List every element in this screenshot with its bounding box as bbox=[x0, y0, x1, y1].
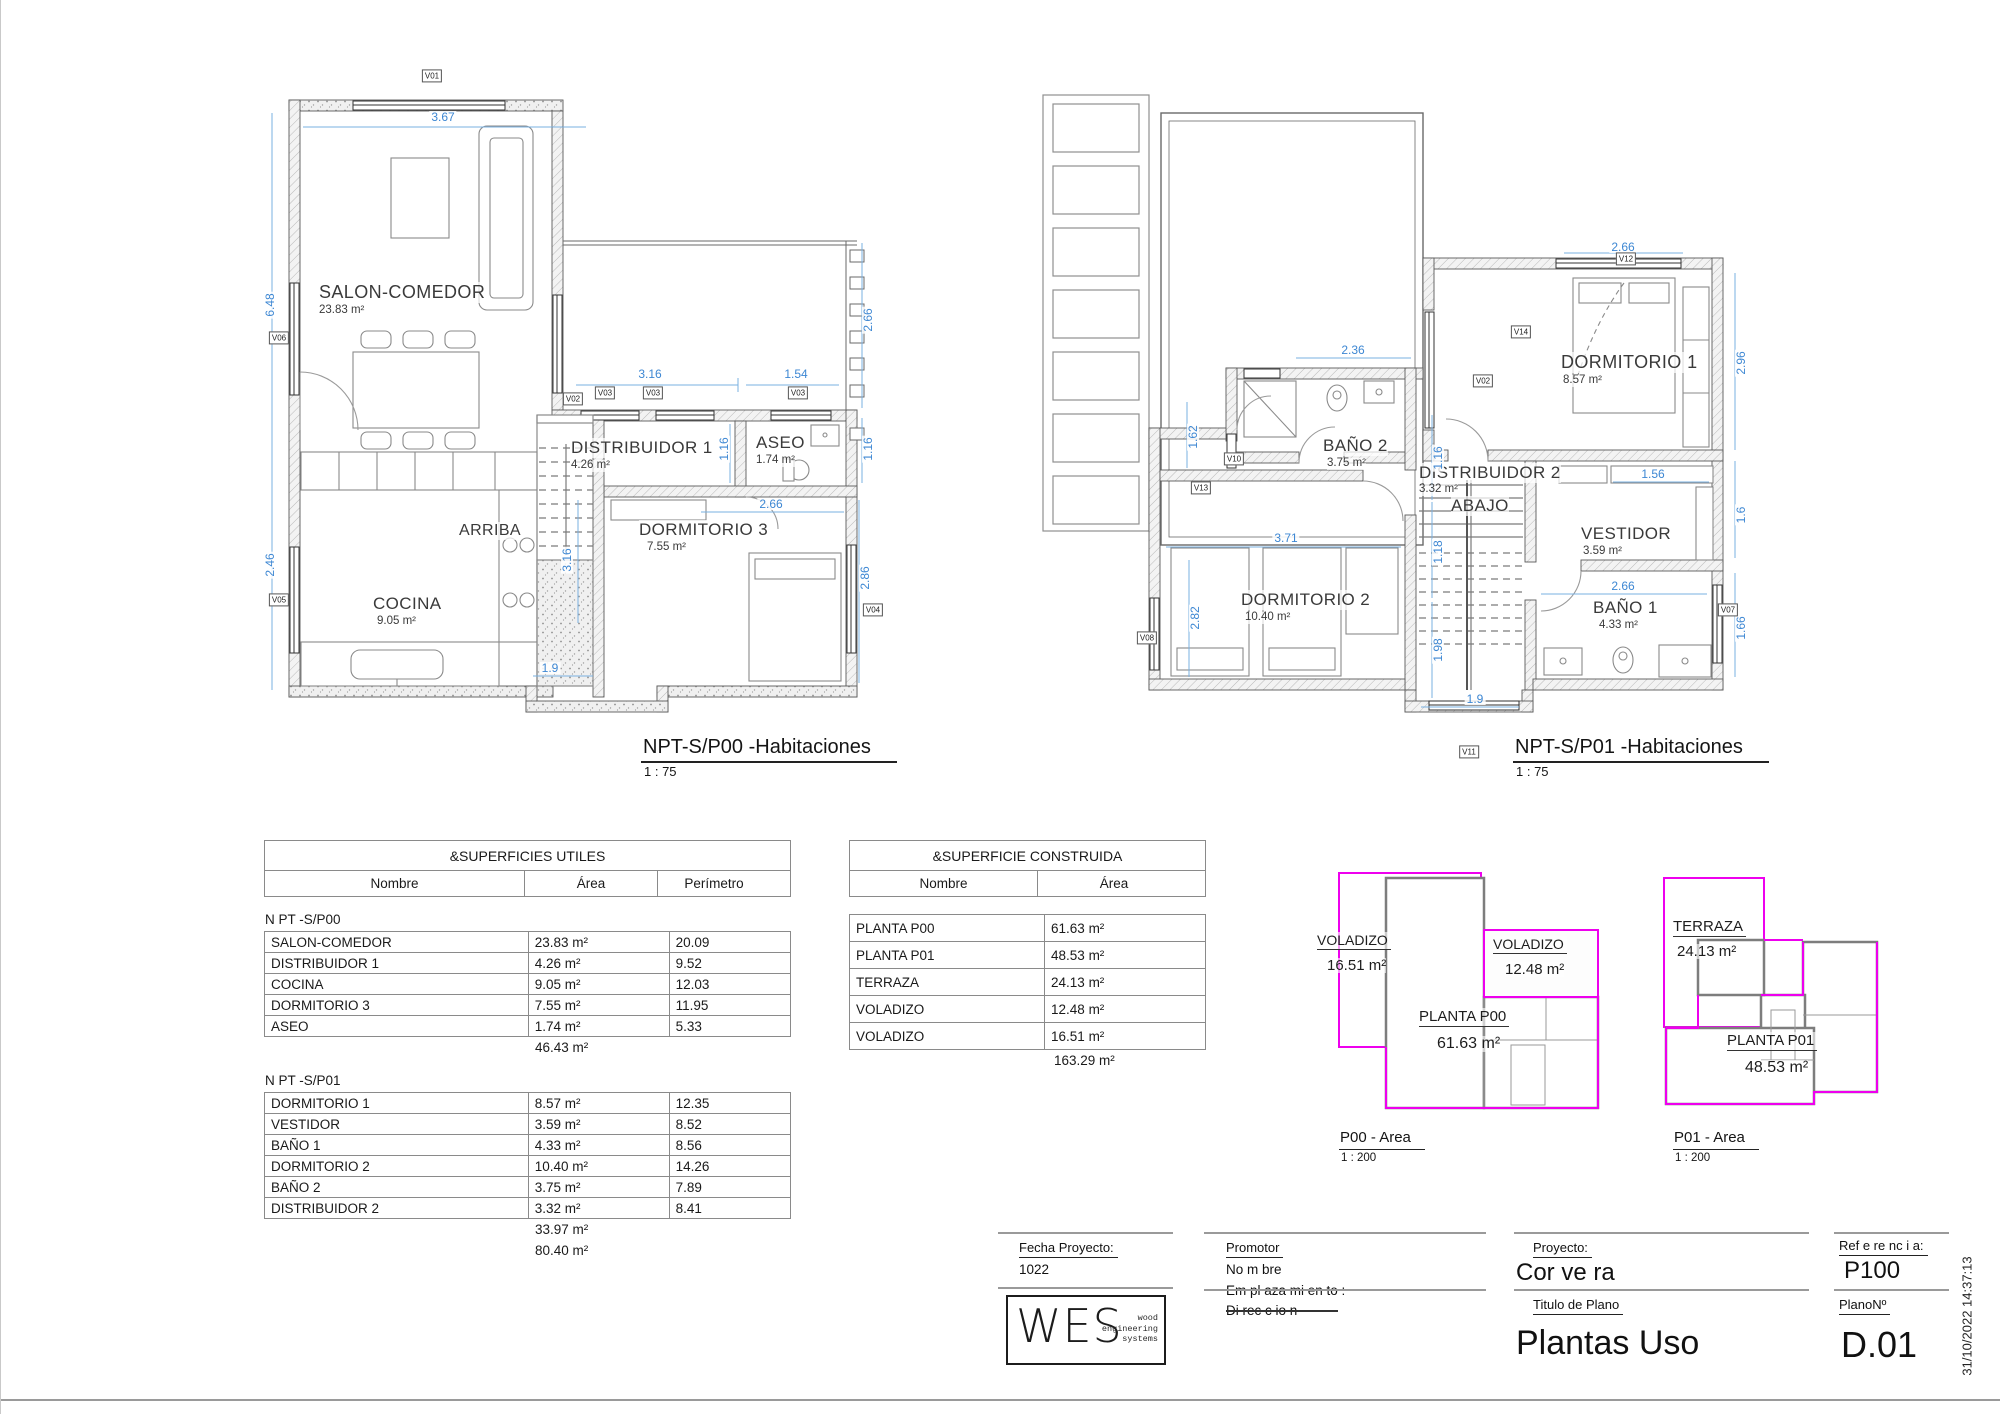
table-construida-rows: PLANTA P0061.63 m² PLANTA P0148.53 m² TE… bbox=[849, 914, 1206, 1050]
table-utiles-rows-p00: SALON-COMEDOR23.83 m²20.09 DISTRIBUIDOR … bbox=[264, 931, 791, 1037]
table-utiles-rows-p01: DORMITORIO 18.57 m²12.35 VESTIDOR3.59 m²… bbox=[264, 1092, 791, 1219]
table-construida-title: &SUPERFICIE CONSTRUIDA bbox=[849, 840, 1206, 871]
window-tag-v03a: V03 bbox=[595, 386, 615, 399]
subtotal-p00: 46.43 m² bbox=[264, 1037, 791, 1058]
room-area-dormitorio-3: 7.55 m² bbox=[647, 542, 686, 554]
table-utiles-title: &SUPERFICIES UTILES bbox=[264, 840, 791, 871]
area-p00-shapes bbox=[1339, 873, 1598, 1108]
table-row: SALON-COMEDOR23.83 m²20.09 bbox=[265, 932, 790, 952]
wes-logo-subtext: woodengineeringsystems bbox=[1102, 1313, 1158, 1345]
promotor-nombre: No m bre bbox=[1226, 1262, 1282, 1278]
table-row: PLANTA P0148.53 m² bbox=[850, 941, 1205, 968]
area-p01-terraza-label: TERRAZA bbox=[1673, 918, 1746, 937]
room-label-bano-1: BAÑO 1 bbox=[1593, 598, 1658, 618]
window-tag-v04: V04 bbox=[863, 603, 883, 616]
table-utiles-header: Nombre Área Perímetro bbox=[264, 870, 791, 897]
room-label-bano-2: BAÑO 2 bbox=[1323, 436, 1388, 456]
table-construida-header: Nombre Área bbox=[849, 870, 1206, 897]
room-label-dormitorio-2: DORMITORIO 2 bbox=[1241, 590, 1370, 610]
col-perimetro: Perímetro bbox=[657, 871, 770, 896]
dim-p01-266t: 2.66 bbox=[1609, 241, 1636, 253]
window-tag-v02: V02 bbox=[563, 392, 583, 405]
area-p01-planta-value: 48.53 m² bbox=[1745, 1060, 1808, 1076]
room-label-vestidor: VESTIDOR bbox=[1581, 524, 1671, 544]
strike-line bbox=[1226, 1310, 1338, 1312]
area-p00-planta-label: PLANTA P00 bbox=[1419, 1008, 1509, 1027]
dim-p00-154: 1.54 bbox=[782, 368, 809, 380]
dim-p01-162: 1.62 bbox=[1187, 423, 1199, 450]
table-row: DORMITORIO 37.55 m²11.95 bbox=[265, 994, 790, 1015]
table-row: VOLADIZO12.48 m² bbox=[850, 995, 1205, 1022]
col-area: Área bbox=[524, 871, 657, 896]
referencia-label: Ref e re nc i a: bbox=[1839, 1238, 1928, 1256]
table-row: TERRAZA24.13 m² bbox=[850, 968, 1205, 995]
group-label-p01: N PT -S/P01 bbox=[265, 1073, 791, 1088]
dim-p01-266b: 2.66 bbox=[1609, 580, 1636, 592]
plano-numero-value: D.01 bbox=[1841, 1326, 1917, 1364]
dim-p01-166: 1.66 bbox=[1735, 614, 1747, 641]
titleblock-rule bbox=[1834, 1289, 1949, 1291]
table-row: ASEO1.74 m²5.33 bbox=[265, 1015, 790, 1036]
window-tag-v02-p01: V02 bbox=[1473, 374, 1493, 387]
dim-p00-286: 2.86 bbox=[859, 564, 871, 591]
col-area: Área bbox=[1037, 871, 1190, 896]
fecha-proyecto-label: Fecha Proyecto: bbox=[1019, 1240, 1118, 1258]
window-tag-v06: V06 bbox=[269, 331, 289, 344]
area-p00-voladizo-left-value: 16.51 m² bbox=[1327, 958, 1386, 973]
col-nombre: Nombre bbox=[850, 871, 1037, 896]
area-p01-planta-label: PLANTA P01 bbox=[1727, 1032, 1817, 1051]
area-p00-scale: 1 : 200 bbox=[1341, 1153, 1376, 1165]
col-nombre: Nombre bbox=[265, 871, 524, 896]
plan-p01-louvers bbox=[1043, 95, 1149, 531]
wes-logo: WES woodengineeringsystems bbox=[1006, 1295, 1166, 1365]
room-area-dormitorio-2: 10.40 m² bbox=[1245, 612, 1290, 624]
stair-label-arriba: ARRIBA bbox=[459, 522, 521, 540]
dim-p01-19: 1.9 bbox=[1465, 693, 1486, 705]
window-tag-v11: V11 bbox=[1459, 745, 1479, 758]
area-p00-title: P00 - Area bbox=[1339, 1130, 1425, 1150]
table-row: VESTIDOR3.59 m²8.52 bbox=[265, 1113, 790, 1134]
room-label-aseo: ASEO bbox=[756, 433, 805, 453]
table-row: DORMITORIO 210.40 m²14.26 bbox=[265, 1155, 790, 1176]
plano-numero-label: PlanoNº bbox=[1839, 1297, 1890, 1315]
stair-label-abajo: ABAJO bbox=[1451, 496, 1509, 516]
group-label-p00: N PT -S/P00 bbox=[265, 912, 791, 927]
dim-p00-266r: 2.66 bbox=[862, 306, 874, 333]
dim-p01-198: 1.98 bbox=[1432, 636, 1444, 663]
area-p00-planta-value: 61.63 m² bbox=[1437, 1036, 1500, 1052]
area-p00-voladizo-right-label: VOLADIZO bbox=[1493, 936, 1567, 954]
room-area-bano-1: 4.33 m² bbox=[1599, 620, 1638, 632]
dim-p00-246: 2.46 bbox=[264, 551, 276, 578]
room-label-dormitorio-3: DORMITORIO 3 bbox=[639, 520, 768, 540]
window-tag-v08: V08 bbox=[1137, 631, 1157, 644]
table-row: BAÑO 14.33 m²8.56 bbox=[265, 1134, 790, 1155]
area-p00-voladizo-right-value: 12.48 m² bbox=[1505, 962, 1564, 977]
table-row: BAÑO 23.75 m²7.89 bbox=[265, 1176, 790, 1197]
titleblock-rule bbox=[1204, 1232, 1486, 1234]
room-area-cocina: 9.05 m² bbox=[377, 616, 416, 628]
titleblock-rule bbox=[1514, 1289, 1809, 1291]
area-p01-title: P01 - Area bbox=[1673, 1130, 1759, 1150]
table-row: DISTRIBUIDOR 14.26 m²9.52 bbox=[265, 952, 790, 973]
dim-p01-156: 1.56 bbox=[1639, 468, 1666, 480]
dim-p01-282: 2.82 bbox=[1189, 604, 1201, 631]
area-p00-voladizo-left-label: VOLADIZO bbox=[1317, 932, 1391, 950]
sheet-bottom-rule bbox=[1, 1399, 2000, 1401]
drawing-sheet: SALON-COMEDOR 23.83 m² DISTRIBUIDOR 1 4.… bbox=[0, 0, 2000, 1414]
window-tag-v12: V12 bbox=[1616, 252, 1636, 265]
dim-p00-367: 3.67 bbox=[429, 111, 456, 123]
table-row: COCINA9.05 m²12.03 bbox=[265, 973, 790, 994]
room-label-distribuidor-1: DISTRIBUIDOR 1 bbox=[571, 438, 713, 458]
table-superficie-construida: &SUPERFICIE CONSTRUIDA Nombre Área PLANT… bbox=[849, 840, 1206, 1071]
dim-p00-316: 3.16 bbox=[636, 368, 663, 380]
total-construida: 163.29 m² bbox=[849, 1050, 1206, 1071]
window-tag-v13: V13 bbox=[1191, 481, 1211, 494]
titleblock-rule bbox=[1514, 1232, 1809, 1234]
dim-p00-116b: 1.16 bbox=[862, 435, 874, 462]
room-label-salon-comedor: SALON-COMEDOR bbox=[319, 282, 485, 303]
room-area-distribuidor-2: 3.32 m² bbox=[1419, 484, 1458, 496]
dim-p01-296: 2.96 bbox=[1735, 349, 1747, 376]
plan-p00-title: NPT-S/P00 -Habitaciones bbox=[641, 736, 897, 763]
dim-p00-116a: 1.16 bbox=[718, 435, 730, 462]
titleblock-rule bbox=[1834, 1232, 1949, 1234]
table-row: VOLADIZO16.51 m² bbox=[850, 1022, 1205, 1049]
window-tag-v14: V14 bbox=[1511, 325, 1531, 338]
plan-p01-title: NPT-S/P01 -Habitaciones bbox=[1513, 736, 1769, 763]
room-label-cocina: COCINA bbox=[373, 594, 442, 614]
room-area-salon-comedor: 23.83 m² bbox=[319, 305, 364, 317]
titleblock-rule bbox=[1204, 1289, 1486, 1291]
titulo-plano-value: Plantas Uso bbox=[1516, 1326, 1699, 1362]
dim-p01-116: 1.16 bbox=[1432, 444, 1444, 471]
titleblock-rule bbox=[998, 1232, 1173, 1234]
window-tag-v10: V10 bbox=[1224, 452, 1244, 465]
timestamp: 31/10/2022 14:37:13 bbox=[1961, 1256, 1974, 1375]
window-tag-v01: V01 bbox=[422, 69, 442, 82]
dim-p00-648: 6.48 bbox=[264, 291, 276, 318]
plan-p00-scale: 1 : 75 bbox=[644, 765, 677, 778]
dim-p01-118: 1.18 bbox=[1432, 538, 1444, 565]
table-row: DORMITORIO 18.57 m²12.35 bbox=[265, 1093, 790, 1113]
plan-p01-scale: 1 : 75 bbox=[1516, 765, 1549, 778]
room-area-distribuidor-1: 4.26 m² bbox=[571, 460, 610, 472]
room-area-vestidor: 3.59 m² bbox=[1583, 546, 1622, 558]
fecha-proyecto-value: 1022 bbox=[1019, 1262, 1049, 1278]
table-row: DISTRIBUIDOR 23.32 m²8.41 bbox=[265, 1197, 790, 1218]
total-utiles: 80.40 m² bbox=[264, 1240, 791, 1261]
table-superficies-utiles: &SUPERFICIES UTILES Nombre Área Perímetr… bbox=[264, 840, 791, 1261]
area-p01-terraza-value: 24.13 m² bbox=[1677, 944, 1736, 959]
dim-p00-19: 1.9 bbox=[540, 662, 561, 674]
room-label-dormitorio-1: DORMITORIO 1 bbox=[1561, 352, 1697, 373]
dim-p00-266d: 2.66 bbox=[757, 498, 784, 510]
room-area-bano-2: 3.75 m² bbox=[1327, 458, 1366, 470]
dim-p01-16: 1.6 bbox=[1735, 505, 1747, 526]
titulo-plano-label: Titulo de Plano bbox=[1533, 1297, 1623, 1315]
proyecto-label: Proyecto: bbox=[1533, 1240, 1592, 1258]
promotor-label: Promotor bbox=[1226, 1240, 1283, 1258]
referencia-value: P100 bbox=[1844, 1258, 1900, 1284]
dim-p00-316s: 3.16 bbox=[561, 546, 573, 573]
titleblock-rule bbox=[998, 1287, 1173, 1289]
dim-p01-371: 3.71 bbox=[1272, 532, 1299, 544]
area-p01-scale: 1 : 200 bbox=[1675, 1153, 1710, 1165]
dim-p01-236: 2.36 bbox=[1339, 344, 1366, 356]
room-area-dormitorio-1: 8.57 m² bbox=[1563, 375, 1602, 387]
window-tag-v03c: V03 bbox=[788, 386, 808, 399]
table-row: PLANTA P0061.63 m² bbox=[850, 915, 1205, 941]
window-tag-v05: V05 bbox=[269, 593, 289, 606]
proyecto-value: Cor ve ra bbox=[1516, 1260, 1615, 1286]
subtotal-p01: 33.97 m² bbox=[264, 1219, 791, 1240]
window-tag-v03b: V03 bbox=[643, 386, 663, 399]
room-area-aseo: 1.74 m² bbox=[756, 455, 795, 467]
promotor-emplazamiento: Em pl aza mi en to : bbox=[1226, 1283, 1345, 1299]
window-tag-v07: V07 bbox=[1718, 603, 1738, 616]
